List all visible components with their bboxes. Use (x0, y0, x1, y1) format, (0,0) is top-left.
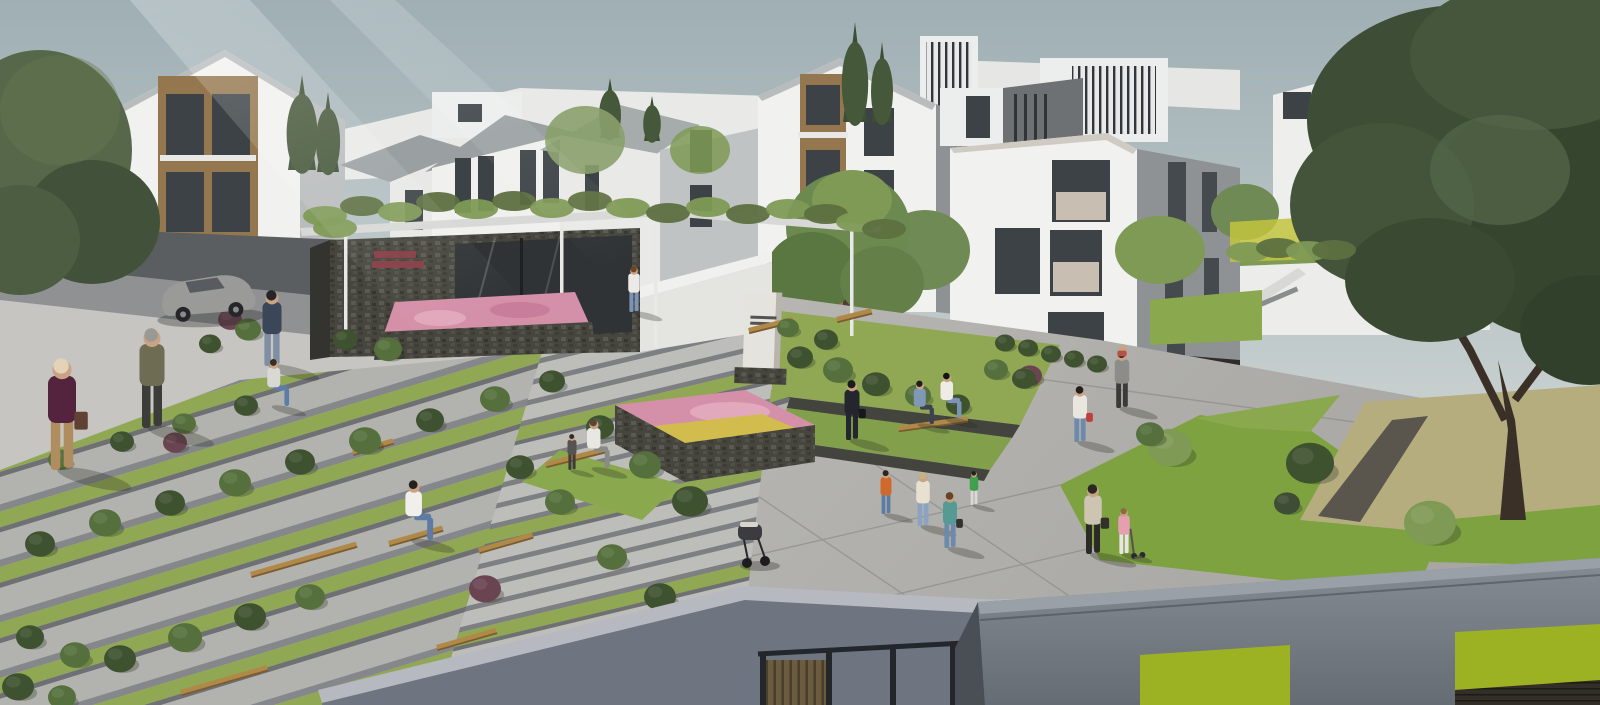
wall-opening-green-1 (1140, 645, 1290, 705)
vine-clump (686, 197, 730, 217)
vine-clump (726, 204, 770, 224)
vine-clump (862, 219, 906, 239)
vine-clump (1312, 240, 1356, 260)
wood-gate-panel (766, 660, 830, 705)
vine-clump (766, 199, 810, 219)
vine-clump (454, 199, 498, 219)
architectural-render-scene (0, 0, 1600, 705)
render-canvas (0, 0, 1600, 705)
vine-clump (646, 203, 690, 223)
wall-opening-green-2 (1455, 624, 1600, 690)
